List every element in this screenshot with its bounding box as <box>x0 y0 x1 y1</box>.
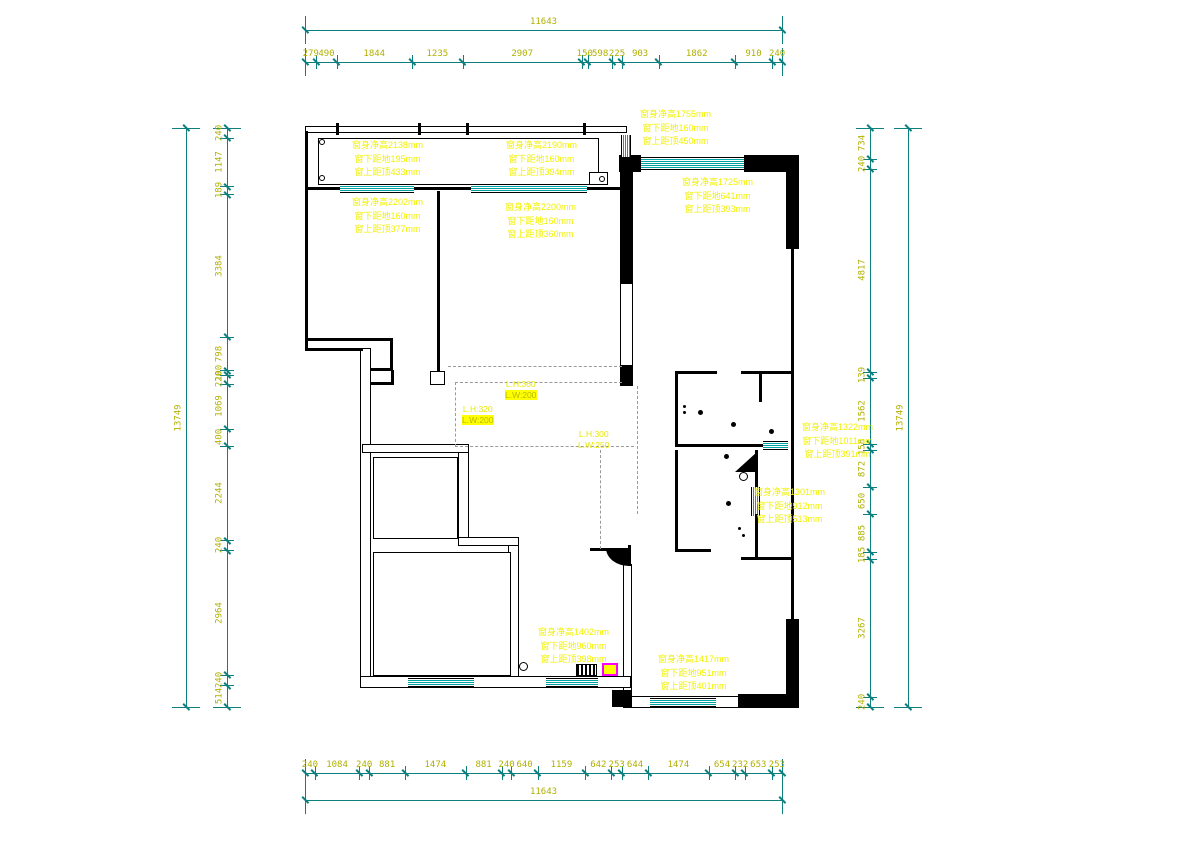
wall-segment <box>675 549 711 552</box>
dimension-value: 1474 <box>668 761 690 770</box>
room-outline <box>373 552 511 676</box>
floor-plan-canvas[interactable]: 2794901844123529071505982259031862910240… <box>0 0 1200 845</box>
window-annotation-line: 窗下距地951mm <box>658 667 729 681</box>
dimension-value: 240 <box>216 125 225 141</box>
dimension-value: 881 <box>475 761 491 770</box>
dimension-value: 872 <box>859 460 868 476</box>
floor-drain-dot <box>726 501 731 506</box>
dimension-value: 598 <box>592 50 608 59</box>
dimension-line <box>870 128 871 707</box>
wall-segment <box>390 341 393 371</box>
window-annotation-line: 窗下距地912mm <box>754 500 825 514</box>
floor-drain-dot <box>683 405 686 408</box>
dimension-value: 1562 <box>859 400 868 422</box>
beam-dashed-line <box>448 366 622 367</box>
dimension-value: 910 <box>745 50 761 59</box>
dimension-line <box>305 62 782 63</box>
dimension-value: 1084 <box>326 761 348 770</box>
wall-segment <box>741 557 792 560</box>
window-annotation-line: 窗上距顶398mm <box>538 653 609 667</box>
fixture-circle <box>519 662 528 671</box>
window-annotation-line: 窗身净高2200mm <box>505 201 576 215</box>
window-annotation: 窗身净高1755mm窗下距地160mm窗上距顶450mm <box>640 108 711 149</box>
beam-dashed-line <box>455 382 456 447</box>
dimension-value: 240 <box>859 156 868 172</box>
dimension-line <box>186 128 187 707</box>
shaft-outline <box>373 457 458 539</box>
wall-segment <box>305 338 393 341</box>
wall-segment <box>759 374 762 402</box>
floor-drain-dot <box>742 534 745 537</box>
shear-wall <box>612 690 632 707</box>
dimension-value: 189 <box>216 182 225 198</box>
wall-segment <box>437 191 440 372</box>
window-annotation-line: 窗下距地641mm <box>682 190 753 204</box>
wall-segment <box>583 123 586 135</box>
dimension-value: 1069 <box>216 396 225 418</box>
wall-segment <box>305 187 341 190</box>
dimension-value: 903 <box>632 50 648 59</box>
dimension-value: 11643 <box>530 18 557 27</box>
window <box>471 184 587 193</box>
window-annotation-line: 窗身净高1755mm <box>640 108 711 122</box>
wall-segment <box>336 123 339 135</box>
window-annotation-line: 窗下距地160mm <box>640 122 711 136</box>
beam-annotation: L.H:360L.W:200 <box>505 379 537 400</box>
beam-annotation-line: L.W:200 <box>505 390 537 401</box>
dimension-value: 1862 <box>686 50 708 59</box>
dimension-value: 654 <box>714 761 730 770</box>
fixture-circle <box>599 176 605 182</box>
window-annotation: 窗身净高1301mm窗下距地912mm窗上距顶513mm <box>754 486 825 527</box>
dimension-value: 642 <box>590 761 606 770</box>
wall-segment <box>675 444 768 447</box>
wall-segment <box>418 123 421 135</box>
wall-segment <box>305 131 308 341</box>
shear-wall <box>620 157 633 283</box>
dimension-value: 4817 <box>859 260 868 282</box>
dimension-value: 885 <box>859 525 868 541</box>
dimension-value: 11643 <box>530 788 557 797</box>
window <box>650 698 716 707</box>
window-annotation: 窗身净高1402mm窗下距地960mm窗上距顶398mm <box>538 626 609 667</box>
dimension-value: 253 <box>609 761 625 770</box>
dimension-value: 640 <box>516 761 532 770</box>
dimension-value: 1474 <box>425 761 447 770</box>
window-annotation: 窗身净高2202mm窗下距地160mm窗上距顶377mm <box>352 196 423 237</box>
dimension-value: 514 <box>216 688 225 704</box>
dimension-value: 240 <box>769 50 785 59</box>
beam-annotation: L.H:320L.W:200 <box>462 404 494 425</box>
window-annotation-line: 窗上距顶394mm <box>506 166 577 180</box>
window <box>621 135 631 157</box>
dimension-value: 13749 <box>175 404 184 431</box>
fixture-circle <box>319 139 325 145</box>
window-annotation-line: 窗身净高2138mm <box>352 139 423 153</box>
floor-drain-dot <box>769 429 774 434</box>
dimension-line <box>305 30 782 31</box>
dimension-value: 2244 <box>216 482 225 504</box>
dimension-value: 1147 <box>216 151 225 173</box>
dimension-value: 2964 <box>216 602 225 624</box>
dimension-value: 1235 <box>427 50 449 59</box>
dimension-value: 240 <box>356 761 372 770</box>
window-annotation-line: 窗上距顶433mm <box>352 166 423 180</box>
beam-annotation: L.H:300L.W:250 <box>578 429 610 450</box>
window-annotation-line: 窗身净高2202mm <box>352 196 423 210</box>
beam-annotation-line: L.H:320 <box>462 404 494 415</box>
wall-segment <box>675 450 678 552</box>
window-annotation: 窗身净高1417mm窗下距地951mm窗上距顶401mm <box>658 653 729 694</box>
beam-annotation-line: L.H:300 <box>578 429 610 440</box>
window-annotation-line: 窗上距顶391mm <box>802 448 873 462</box>
window-annotation-line: 窗上距顶360mm <box>505 228 576 242</box>
wall-outline <box>620 283 633 366</box>
dimension-value: 650 <box>859 492 868 508</box>
window <box>408 678 474 687</box>
floor-drain-dot <box>724 454 729 459</box>
window-annotation-line: 窗上距顶401mm <box>658 680 729 694</box>
floor-drain-dot <box>683 411 686 414</box>
window-annotation-line: 窗下距地160mm <box>506 153 577 167</box>
wall-outline <box>430 371 445 385</box>
dimension-value: 490 <box>318 50 334 59</box>
window-annotation-line: 窗下距地1011mm <box>802 435 873 449</box>
window-annotation-line: 窗身净高1301mm <box>754 486 825 500</box>
floor-drain-dot <box>738 527 741 530</box>
beam-dashed-line <box>637 386 638 514</box>
window <box>763 441 788 450</box>
window-annotation: 窗身净高1322mm窗下距地1011mm窗上距顶391mm <box>802 421 873 462</box>
dimension-value: 400 <box>216 429 225 445</box>
dimension-value: 3384 <box>216 255 225 277</box>
wall-segment <box>466 123 469 135</box>
dimension-value: 240 <box>859 694 868 710</box>
fixture-circle <box>739 472 748 481</box>
window-annotation-line: 窗上距顶393mm <box>682 203 753 217</box>
window-annotation-line: 窗下距地195mm <box>352 153 423 167</box>
dimension-value: 225 <box>609 50 625 59</box>
dimension-value: 240 <box>302 761 318 770</box>
window-annotation-line: 窗身净高1402mm <box>538 626 609 640</box>
dimension-line <box>227 128 228 707</box>
window <box>546 678 598 687</box>
dimension-value: 139 <box>859 367 868 383</box>
window-annotation: 窗身净高2190mm窗下距地160mm窗上距顶394mm <box>506 139 577 180</box>
dimension-value: 150 <box>577 50 593 59</box>
dimension-value: 653 <box>750 761 766 770</box>
wall-segment <box>628 545 631 566</box>
window <box>641 157 744 170</box>
dimension-value: 2907 <box>511 50 533 59</box>
shear-wall <box>738 694 792 708</box>
dimension-value: 1159 <box>551 761 573 770</box>
window-annotation-line: 窗下距地960mm <box>538 640 609 654</box>
dimension-value: 240 <box>216 672 225 688</box>
beam-dashed-line <box>600 450 601 549</box>
dimension-value: 13749 <box>897 404 906 431</box>
window-annotation-line: 窗身净高1322mm <box>802 421 873 435</box>
wall-segment <box>675 371 678 447</box>
dimension-value: 644 <box>627 761 643 770</box>
dimension-value: 240 <box>498 761 514 770</box>
dimension-value: 185 <box>859 547 868 563</box>
dimension-value: 798 <box>216 346 225 362</box>
wall-segment <box>791 249 794 621</box>
dimension-line <box>908 128 909 707</box>
window-annotation-line: 窗身净高1417mm <box>658 653 729 667</box>
window-annotation-line: 窗身净高1725mm <box>682 176 753 190</box>
window <box>340 184 414 193</box>
wall-segment <box>675 371 717 374</box>
beam-annotation-line: L.W:250 <box>578 440 610 451</box>
window-annotation-line: 窗上距顶513mm <box>754 513 825 527</box>
dimension-value: 881 <box>379 761 395 770</box>
wall-outline <box>360 348 371 687</box>
wall-outline <box>458 452 469 543</box>
dimension-value: 240 <box>216 537 225 553</box>
dimension-value: 232 <box>732 761 748 770</box>
fixture-circle <box>319 175 325 181</box>
wall-segment <box>741 371 793 374</box>
window-annotation-line: 窗下距地160mm <box>505 215 576 229</box>
dimension-value: 3267 <box>859 617 868 639</box>
door-swing <box>606 548 629 566</box>
dimension-value: 253 <box>769 761 785 770</box>
window-annotation-line: 窗上距顶450mm <box>640 135 711 149</box>
window-annotation-line: 窗身净高2190mm <box>506 139 577 153</box>
window-annotation-line: 窗下距地160mm <box>352 210 423 224</box>
wall-segment <box>413 187 472 190</box>
shear-wall <box>786 155 799 249</box>
beam-dashed-line <box>455 382 622 383</box>
window-annotation: 窗身净高2200mm窗下距地160mm窗上距顶360mm <box>505 201 576 242</box>
beam-annotation-line: L.W:200 <box>462 415 494 426</box>
window-annotation-line: 窗上距顶377mm <box>352 223 423 237</box>
dimension-value: 1844 <box>363 50 385 59</box>
wall-segment <box>744 155 791 172</box>
beam-annotation-line: L.H:360 <box>505 379 537 390</box>
dimension-value: 279 <box>303 50 319 59</box>
dimension-value: 734 <box>859 135 868 151</box>
floor-drain-dot <box>698 410 703 415</box>
window-annotation: 窗身净高1725mm窗下距地641mm窗上距顶393mm <box>682 176 753 217</box>
wall-outline <box>362 444 469 453</box>
dimension-value: 220 <box>216 371 225 387</box>
wall-segment <box>305 348 363 351</box>
floor-drain-dot <box>731 422 736 427</box>
dimension-line <box>305 800 782 801</box>
corner-fixture <box>735 452 757 472</box>
window-annotation: 窗身净高2138mm窗下距地195mm窗上距顶433mm <box>352 139 423 180</box>
